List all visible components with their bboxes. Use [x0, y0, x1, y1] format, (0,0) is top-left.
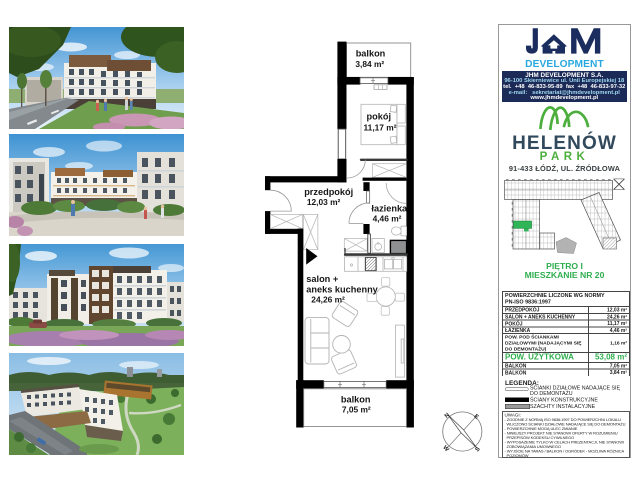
svg-text:12,03 m²: 12,03 m² — [307, 197, 341, 207]
svg-text:pokój: pokój — [367, 111, 392, 121]
svg-text:24,26 m²: 24,26 m² — [311, 295, 345, 305]
svg-text:balkon: balkon — [341, 394, 371, 404]
svg-text:przedpokój: przedpokój — [304, 187, 353, 197]
svg-text:11,17 m²: 11,17 m² — [363, 123, 396, 133]
svg-text:7,05 m²: 7,05 m² — [342, 405, 371, 415]
svg-text:łazienka: łazienka — [371, 204, 408, 214]
svg-text:N: N — [444, 412, 451, 419]
svg-text:balkon: balkon — [356, 48, 386, 58]
svg-text:4,46 m²: 4,46 m² — [373, 214, 402, 224]
svg-text:3,84 m²: 3,84 m² — [355, 59, 384, 69]
svg-text:S: S — [475, 446, 482, 453]
svg-text:aneks kuchenny: aneks kuchenny — [306, 285, 378, 295]
svg-text:salon +: salon + — [306, 274, 338, 284]
